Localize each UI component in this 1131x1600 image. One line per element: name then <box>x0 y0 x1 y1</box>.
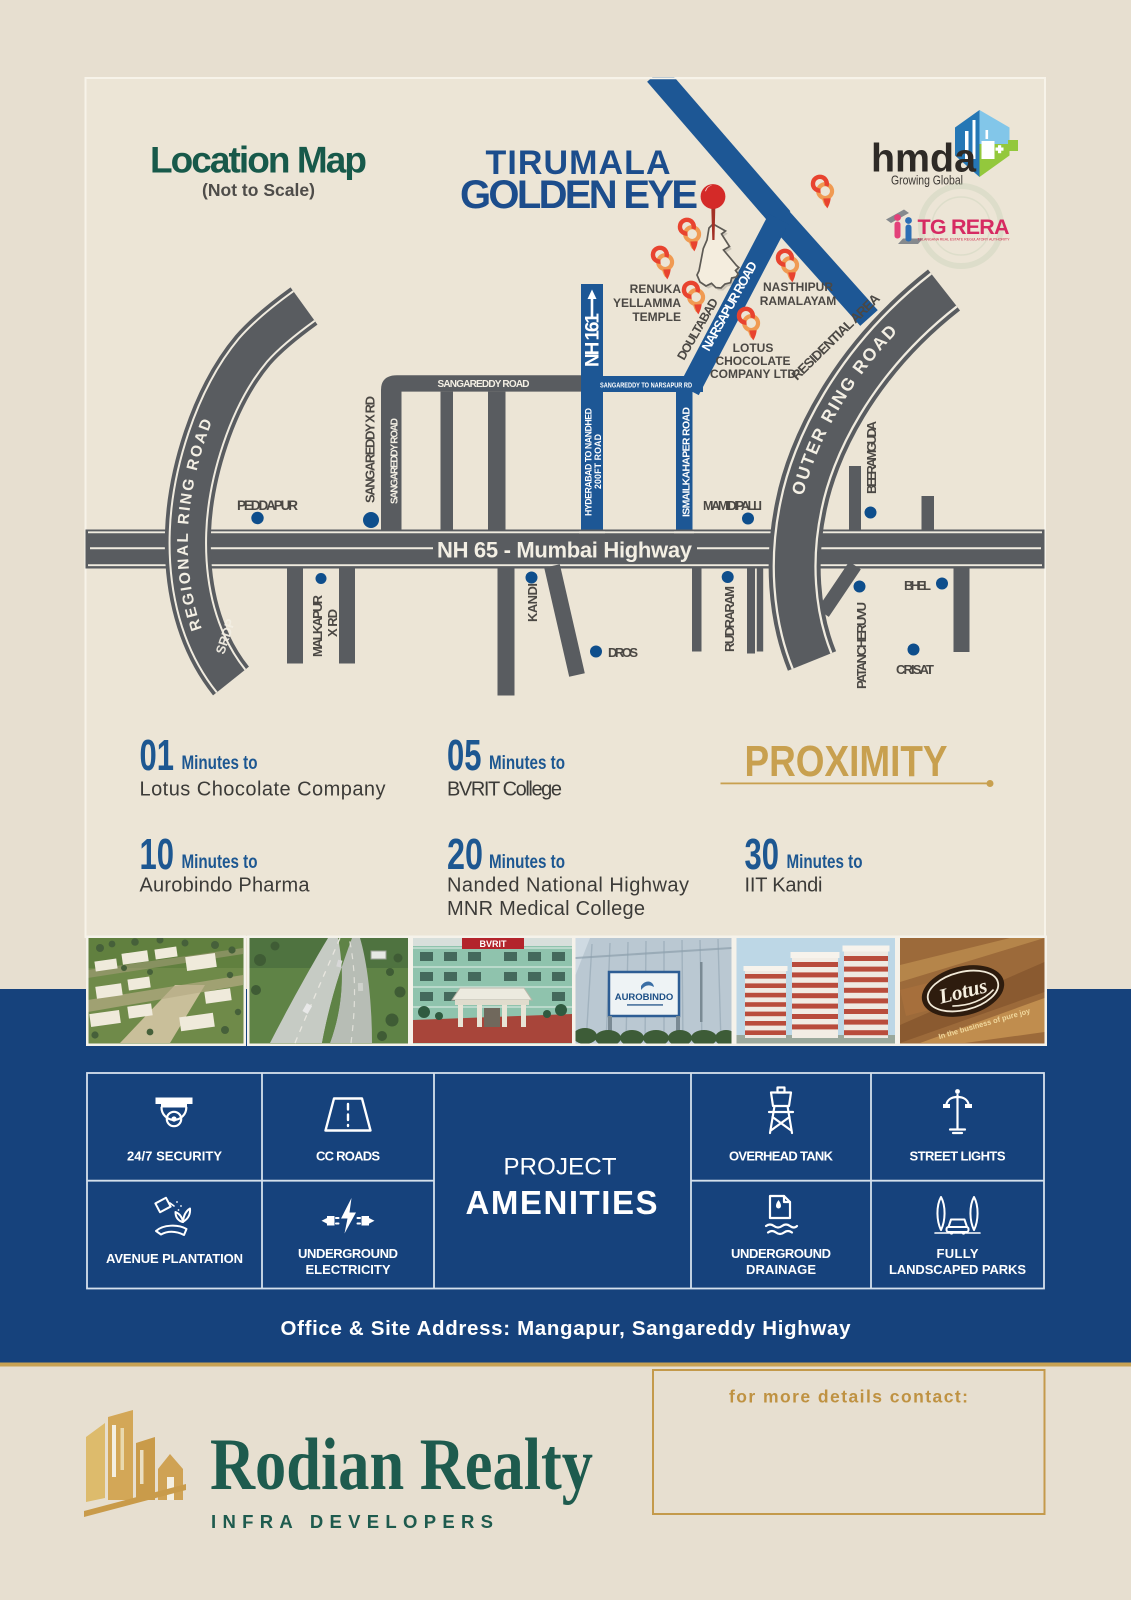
svg-text:BVRIT College: BVRIT College <box>447 779 562 801</box>
svg-text:YELLAMMA: YELLAMMA <box>613 296 681 310</box>
svg-text:INFRA DEVELOPERS: INFRA DEVELOPERS <box>211 1511 493 1532</box>
svg-text:BVRIT: BVRIT <box>480 939 508 949</box>
svg-text:01: 01 <box>140 731 175 780</box>
svg-text:TELANGANA REAL ESTATE REGULATO: TELANGANA REAL ESTATE REGULATORY AUTHORI… <box>918 238 1011 242</box>
svg-text:Minutes to: Minutes to <box>182 753 258 774</box>
svg-text:PROXIMITY: PROXIMITY <box>745 737 948 786</box>
svg-text:Minutes to: Minutes to <box>489 852 565 873</box>
svg-text:NH 161: NH 161 <box>583 313 604 367</box>
svg-text:PROJECT: PROJECT <box>504 1154 622 1181</box>
svg-text:FULLY: FULLY <box>937 1246 979 1261</box>
svg-text:GOLDEN EYE: GOLDEN EYE <box>460 173 698 217</box>
svg-text:Office & Site Address: Mangapu: Office & Site Address: Mangapur, Sangare… <box>281 1317 852 1340</box>
svg-text:STREET LIGHTS: STREET LIGHTS <box>910 1149 1006 1164</box>
svg-text:200FT ROAD: 200FT ROAD <box>593 434 603 489</box>
svg-text:DRAINAGE: DRAINAGE <box>746 1262 816 1277</box>
svg-text:TEMPLE: TEMPLE <box>632 310 681 324</box>
svg-text:RENUKA: RENUKA <box>630 282 682 296</box>
svg-text:CRISAT: CRISAT <box>896 662 934 677</box>
svg-text:MALKAPUR: MALKAPUR <box>310 594 325 657</box>
svg-text:MAMIDIPALLI: MAMIDIPALLI <box>703 499 762 513</box>
svg-text:30: 30 <box>745 830 780 879</box>
svg-text:05: 05 <box>447 731 482 780</box>
svg-text:DROS: DROS <box>608 645 638 660</box>
svg-text:CHOCOLATE: CHOCOLATE <box>715 354 790 368</box>
svg-text:MNR Medical College: MNR Medical College <box>447 898 645 920</box>
svg-text:(Not to Scale): (Not to Scale) <box>202 180 315 200</box>
svg-text:Minutes to: Minutes to <box>489 753 565 774</box>
svg-text:AVENUE PLANTATION: AVENUE PLANTATION <box>106 1251 243 1266</box>
svg-text:10: 10 <box>140 830 175 879</box>
svg-text:SANGAREDDY ROAD: SANGAREDDY ROAD <box>390 418 401 504</box>
svg-text:Nanded National Highway: Nanded National Highway <box>447 875 689 897</box>
svg-text:SANGAREDDY X RD: SANGAREDDY X RD <box>363 396 378 503</box>
svg-text:ELECTRICITY: ELECTRICITY <box>306 1262 391 1277</box>
svg-text:for more details contact:: for more details contact: <box>729 1387 968 1407</box>
svg-text:Minutes to: Minutes to <box>787 852 863 873</box>
svg-text:Minutes to: Minutes to <box>182 852 258 873</box>
svg-text:PEDDAPUR: PEDDAPUR <box>237 498 298 513</box>
svg-text:RAMALAYAM: RAMALAYAM <box>760 294 836 308</box>
svg-text:OVERHEAD TANK: OVERHEAD TANK <box>729 1149 834 1164</box>
svg-text:LANDSCAPED PARKS: LANDSCAPED PARKS <box>889 1262 1026 1277</box>
svg-text:HYDERABAD TO NANDHED: HYDERABAD TO NANDHED <box>584 408 594 516</box>
svg-text:ISMAILKAHAPER ROAD: ISMAILKAHAPER ROAD <box>681 407 693 517</box>
svg-text:Aurobindo Pharma: Aurobindo Pharma <box>140 875 311 897</box>
svg-text:TG RERA: TG RERA <box>918 215 1010 239</box>
svg-text:UNDERGROUND: UNDERGROUND <box>298 1246 398 1261</box>
svg-text:Rodian Realty: Rodian Realty <box>210 1424 593 1506</box>
svg-text:COMPANY LTD: COMPANY LTD <box>710 367 796 381</box>
svg-text:IIT Kandi: IIT Kandi <box>745 875 823 897</box>
svg-text:KANDI: KANDI <box>525 583 540 622</box>
svg-text:NASTHIPUR: NASTHIPUR <box>763 280 833 294</box>
svg-text:PATANCHERUVU: PATANCHERUVU <box>854 602 869 689</box>
svg-text:X RD: X RD <box>325 609 340 637</box>
svg-text:SANGAREDDY ROAD: SANGAREDDY ROAD <box>438 379 530 390</box>
svg-text:Lotus Chocolate Company: Lotus Chocolate Company <box>140 779 386 801</box>
svg-text:BEERAMGUDA: BEERAMGUDA <box>864 420 879 494</box>
svg-text:RUDRARAM: RUDRARAM <box>722 586 737 652</box>
svg-text:AUROBINDO: AUROBINDO <box>615 992 674 1003</box>
svg-text:CC ROADS: CC ROADS <box>316 1149 380 1164</box>
svg-text:NH 65 - Mumbai Highway: NH 65 - Mumbai Highway <box>437 538 693 563</box>
svg-text:Location Map: Location Map <box>150 140 367 181</box>
svg-text:20: 20 <box>447 830 483 879</box>
svg-text:LOTUS: LOTUS <box>733 341 774 355</box>
svg-text:SANGAREDDY TO NARSAPUR RD: SANGAREDDY TO NARSAPUR RD <box>600 380 692 389</box>
svg-text:UNDERGROUND: UNDERGROUND <box>731 1246 831 1261</box>
svg-text:24/7 SECURITY: 24/7 SECURITY <box>127 1149 222 1164</box>
svg-text:BHEL: BHEL <box>904 578 931 593</box>
svg-text:AMENITIES: AMENITIES <box>466 1184 660 1221</box>
